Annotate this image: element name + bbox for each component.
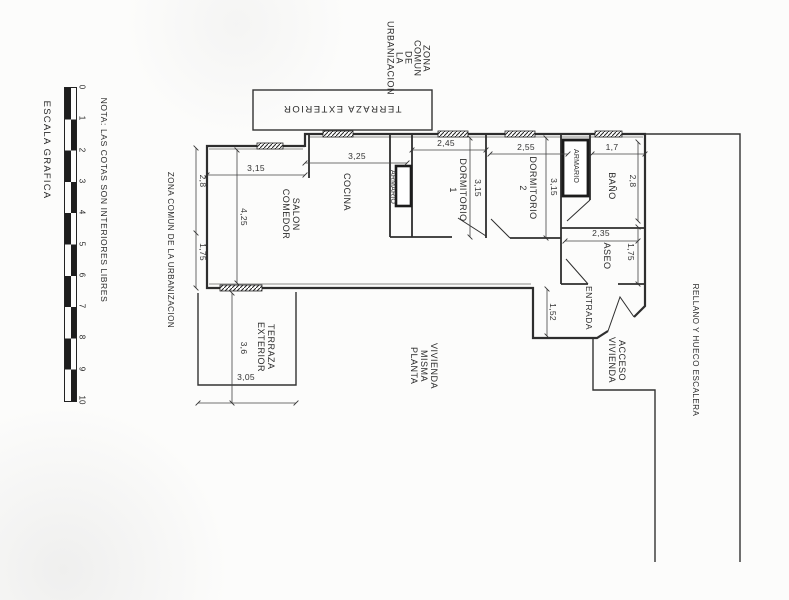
dim-salon-ancho: 3,15 <box>247 163 265 173</box>
scale-bar-column <box>71 88 77 401</box>
label-entrada: ENTRADA <box>584 286 594 330</box>
dim-bano-alto: 2,8 <box>628 175 638 188</box>
dim-dorm2-alto: 3,15 <box>549 178 559 196</box>
scale-tick: 8 <box>78 335 87 339</box>
label-bano: BAÑO <box>607 172 617 200</box>
dim-terraza-ancho: 3,05 <box>237 372 255 382</box>
dim-aseo-ancho: 2,35 <box>592 228 610 238</box>
scale-tick: 6 <box>78 273 87 277</box>
label-armario-pasillo: ARMARIO <box>387 170 397 204</box>
label-terraza-superior: TERRAZA EXTERIOR <box>282 103 401 113</box>
label-dormitorio-1: DORMITORIO 1 <box>448 158 468 221</box>
closet-hall <box>396 166 411 206</box>
label-vivienda-misma-planta: VIVIENDA MISMA PLANTA <box>409 343 439 389</box>
scale-title: ESCALA GRAFICA <box>41 101 51 200</box>
dim-dorm1-ancho: 2,45 <box>437 138 455 148</box>
dim-dorm2-ancho: 2,55 <box>517 142 535 152</box>
scale-tick: 1 <box>78 116 87 120</box>
label-cocina: COCINA <box>342 173 352 211</box>
label-aseo: ASEO <box>602 242 612 269</box>
floor-plan-page: 0 1 2 3 4 5 6 7 8 9 10 ESCALA GRAFICA NO… <box>0 0 789 600</box>
label-terraza-exterior: TERRAZA EXTERIOR <box>256 322 276 372</box>
scale-tick: 7 <box>78 304 87 308</box>
label-zona-comun-top: ZONA COMUN DE LA URBANIZACION <box>386 21 431 95</box>
scale-tick: 9 <box>78 367 87 371</box>
scale-tick: 0 <box>78 85 87 89</box>
scale-tick: 4 <box>78 210 87 214</box>
dim-bano-ancho: 1,7 <box>606 142 619 152</box>
dim-cocina-ancho: 3,25 <box>348 151 366 161</box>
dim-dorm1-alto: 3,15 <box>473 179 483 197</box>
label-dormitorio-2: DORMITORIO 2 <box>518 156 538 219</box>
label-rellano: RELLANO Y HUECO ESCALERA <box>690 284 700 417</box>
label-zona-comun-left: ZONA COMUN DE LA URBANIZACION <box>165 172 175 328</box>
scale-tick: 10 <box>78 396 87 405</box>
label-armario-bano: ARMARIO <box>570 149 580 183</box>
dim-entrada-alto: 1,52 <box>548 303 558 321</box>
dim-salon-alto-sup: 2,8 <box>198 175 208 188</box>
scale-tick: 5 <box>78 242 87 246</box>
dim-terraza-alto: 3,6 <box>239 342 249 355</box>
note-text: NOTA: LAS COTAS SON INTERIORES LIBRES <box>99 98 109 303</box>
label-salon-comedor: SALON COMEDOR <box>281 189 301 240</box>
dim-salon-alto-inf: 1,75 <box>198 243 208 261</box>
dim-aseo-alto: 1,75 <box>626 243 636 261</box>
scale-tick: 2 <box>78 148 87 152</box>
scale-tick: 3 <box>78 179 87 183</box>
dim-salon-alto: 4,25 <box>239 208 249 226</box>
graphic-scale-bar <box>64 87 77 402</box>
label-acceso-vivienda: ACCESO VIVIENDA <box>607 337 627 383</box>
